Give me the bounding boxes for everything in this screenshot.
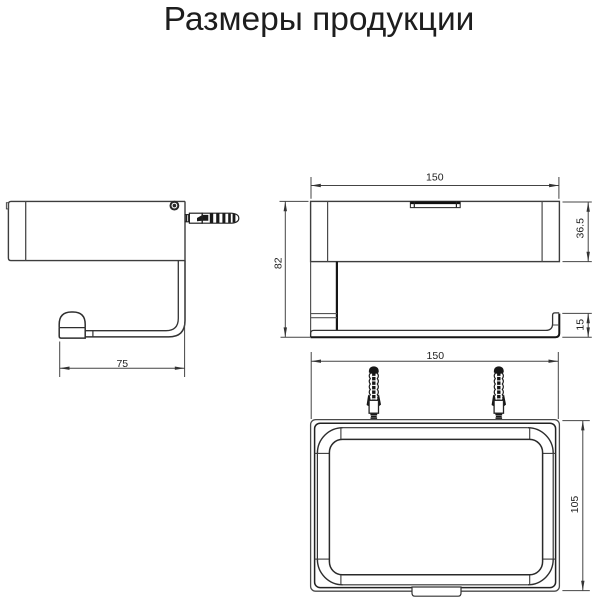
svg-text:15: 15 — [575, 319, 587, 331]
svg-text:150: 150 — [427, 350, 445, 362]
svg-text:82: 82 — [272, 257, 284, 269]
svg-text:105: 105 — [569, 496, 581, 514]
svg-text:75: 75 — [116, 358, 128, 370]
svg-text:36.5: 36.5 — [575, 218, 587, 239]
svg-text:Размеры продукции: Размеры продукции — [164, 1, 475, 38]
svg-text:150: 150 — [426, 172, 444, 184]
